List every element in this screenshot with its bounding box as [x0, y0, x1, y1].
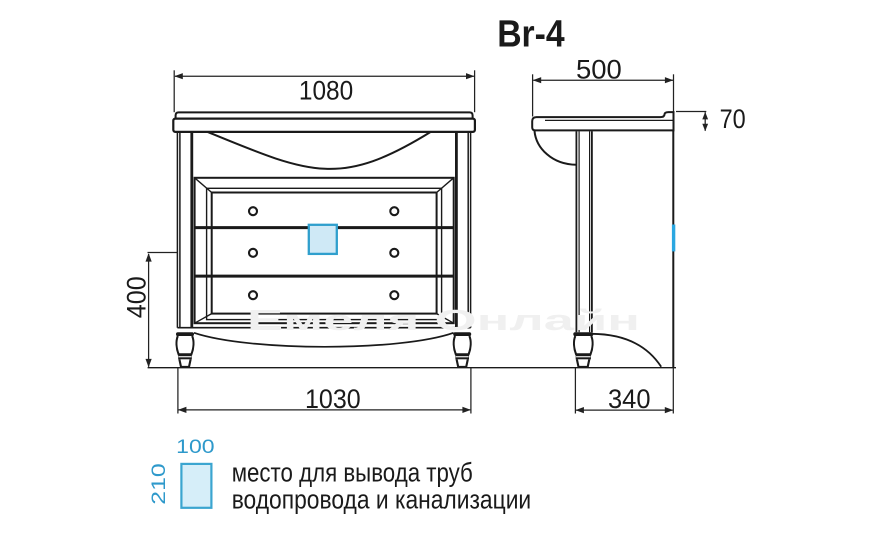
- svg-text:70: 70: [720, 104, 746, 134]
- svg-text:340: 340: [608, 384, 651, 414]
- svg-text:место для вывода труб: место для вывода труб: [232, 458, 473, 488]
- svg-text:210: 210: [148, 463, 170, 505]
- svg-text:1080: 1080: [299, 76, 353, 106]
- svg-text:100: 100: [176, 436, 215, 458]
- svg-text:500: 500: [576, 54, 622, 84]
- svg-text:400: 400: [121, 276, 151, 318]
- svg-text:Br-4: Br-4: [497, 14, 565, 56]
- svg-text:водопровода и канализации: водопровода и канализации: [232, 485, 532, 515]
- svg-text:1030: 1030: [305, 384, 361, 414]
- svg-text:Емеля Онлайн: Емеля Онлайн: [247, 305, 640, 337]
